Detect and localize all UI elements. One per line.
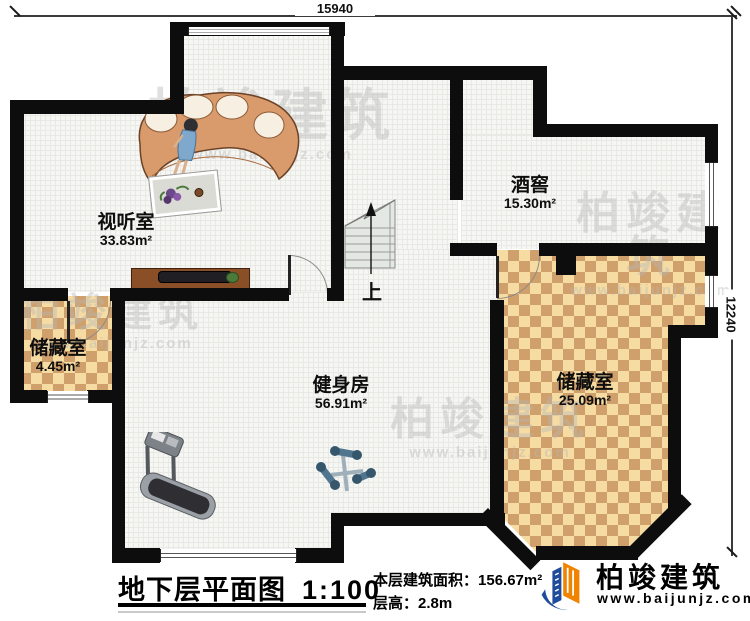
wall — [533, 66, 547, 137]
room-label-storage-large: 储藏室 25.09m² — [535, 373, 635, 408]
door-leaf — [67, 301, 70, 343]
wall — [490, 300, 504, 526]
wall — [556, 256, 576, 275]
window — [705, 162, 718, 227]
wall — [331, 66, 547, 80]
window — [188, 27, 330, 35]
dimension-value-right: 12240 — [724, 290, 739, 340]
stairs-up-label: 上 — [352, 276, 392, 305]
treadmill — [133, 432, 258, 520]
plant — [226, 272, 239, 283]
wall — [331, 22, 344, 301]
wall — [705, 256, 718, 275]
wall — [112, 288, 125, 563]
window — [705, 275, 718, 308]
room-label-wine-cellar: 酒窖 15.30m² — [480, 176, 580, 211]
coffee-table — [148, 169, 222, 218]
door-leaf — [496, 256, 499, 298]
wall — [705, 225, 718, 256]
wall — [533, 124, 718, 137]
floorplan-canvas: 柏竣建筑 www.baijunjz.com 柏竣建筑 www.baijunjz.… — [0, 0, 750, 621]
plan-title-text: 地下层平面图 — [118, 575, 286, 605]
title-underline-secondary — [118, 611, 366, 613]
dimension-value-top: 15940 — [295, 1, 375, 16]
dimension-line-right — [731, 16, 733, 556]
wall — [539, 243, 718, 256]
wall — [450, 243, 497, 256]
window — [160, 549, 297, 562]
tv — [158, 271, 232, 283]
plan-title: 地下层平面图1:100 — [118, 568, 381, 607]
wall — [705, 124, 718, 162]
floor-area-info: 本层建筑面积：156.67m² — [373, 569, 542, 590]
brand-url: www.baijunjz.com — [597, 590, 750, 606]
floor-height-info: 层高：2.8m — [373, 592, 452, 613]
window — [47, 391, 89, 403]
plan-scale: 1:100 — [302, 575, 381, 605]
room-label-av-room: 视听室 33.83m² — [76, 213, 176, 248]
wall — [668, 325, 681, 510]
brand-logo-icon — [538, 554, 592, 612]
room-label-storage-small: 储藏室 4.45m² — [8, 339, 108, 374]
staircase — [344, 196, 402, 276]
dimension-line-top — [14, 15, 737, 17]
title-underline — [118, 603, 366, 607]
wall — [10, 100, 184, 114]
wall — [170, 22, 184, 114]
floor-wine-cellar-upper — [461, 79, 537, 139]
wall — [331, 513, 344, 563]
dumbbell-rack — [313, 445, 377, 501]
wall — [450, 66, 463, 200]
wall — [110, 288, 289, 301]
room-label-gym: 健身房 56.91m² — [291, 376, 391, 411]
wall — [705, 306, 718, 332]
